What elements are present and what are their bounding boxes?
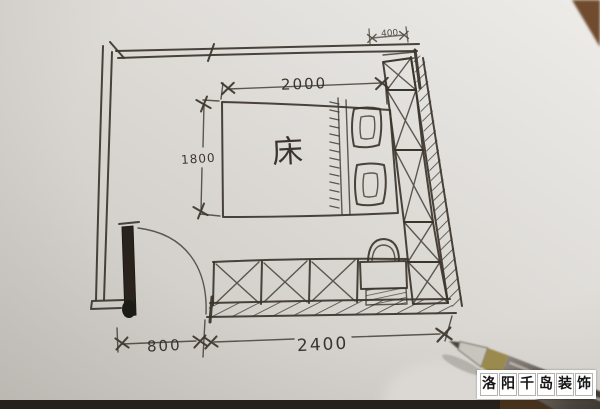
watermark-cell: 装: [556, 373, 574, 396]
dim-2400-label: 2400: [297, 334, 349, 357]
door-hinge-blob: [122, 300, 136, 318]
watermark-cell: 洛: [480, 373, 498, 396]
photo-of-hand-drawn-floorplan: 床 2000: [0, 0, 600, 409]
watermark-cell: 阳: [499, 373, 517, 396]
stool-base-hatch: [366, 289, 406, 305]
watermark-cell: 岛: [537, 373, 555, 396]
dim-1800-label: 1800: [181, 151, 216, 167]
table-edge: [0, 400, 600, 409]
watermark-cell: 千: [518, 373, 536, 396]
dim-2000-label: 2000: [281, 74, 328, 94]
watermark-cell: 饰: [575, 373, 593, 396]
wall-end-tick: [210, 297, 212, 322]
dim-800-label: 800: [147, 336, 183, 356]
dim-400-label: 400: [381, 28, 399, 39]
bed-label: 床: [271, 133, 304, 171]
floorplan-sketch: 床 2000: [0, 0, 600, 409]
watermark: 洛 阳 千 岛 装 饰: [477, 370, 596, 399]
